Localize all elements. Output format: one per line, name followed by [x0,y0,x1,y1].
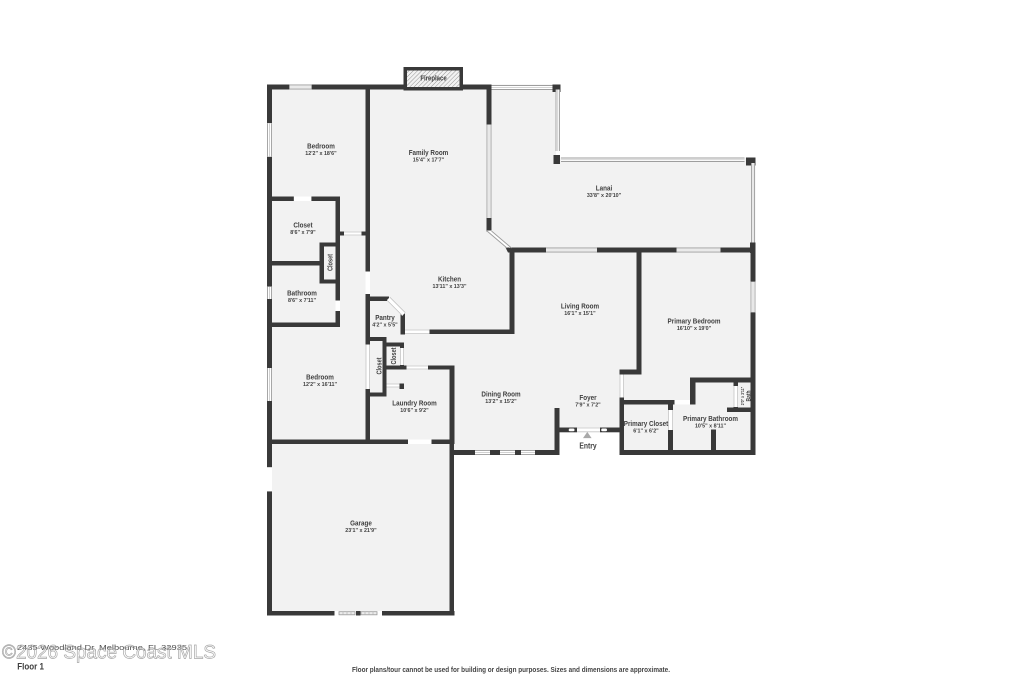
svg-text:Closet: Closet [327,253,335,271]
svg-text:Family Room: Family Room [409,150,449,158]
svg-text:33'8" x 20'10": 33'8" x 20'10" [587,193,622,199]
svg-text:7'9" x 7'2": 7'9" x 7'2" [575,402,601,408]
svg-text:Bedroom: Bedroom [307,143,335,151]
svg-text:Bath: Bath [746,390,753,402]
svg-text:12'2" x 16'11": 12'2" x 16'11" [303,382,338,388]
svg-text:13'11" x 13'3": 13'11" x 13'3" [432,284,467,290]
svg-text:2'0" x 3'11": 2'0" x 3'11" [740,387,746,406]
svg-text:10'5" x 8'11": 10'5" x 8'11" [695,423,727,429]
svg-text:Closet: Closet [293,222,313,230]
svg-text:13'2" x 15'2": 13'2" x 15'2" [485,399,517,405]
svg-text:Kitchen: Kitchen [438,276,461,284]
svg-text:Pantry: Pantry [375,315,395,323]
svg-text:Primary Bedroom: Primary Bedroom [668,318,721,326]
svg-text:16'10" x 19'0": 16'10" x 19'0" [677,326,712,332]
svg-text:Entry: Entry [579,441,597,451]
svg-text:Bathroom: Bathroom [287,290,317,298]
svg-text:10'6" x 9'2": 10'6" x 9'2" [400,408,429,414]
svg-text:8'6" x 7'11": 8'6" x 7'11" [288,298,317,304]
svg-text:Primary Bathroom: Primary Bathroom [683,416,738,424]
svg-text:Garage: Garage [350,520,372,528]
svg-text:Bedroom: Bedroom [306,374,334,382]
svg-text:15'4" x 17'7": 15'4" x 17'7" [413,157,445,163]
svg-text:4'2" x 5'5": 4'2" x 5'5" [372,322,398,328]
svg-text:12'2" x 18'6": 12'2" x 18'6" [305,151,337,157]
svg-text:Lanai: Lanai [596,185,613,193]
svg-text:Primary Closet: Primary Closet [624,421,669,429]
svg-text:16'1" x 15'1": 16'1" x 15'1" [564,311,596,317]
svg-text:Closet: Closet [390,347,398,365]
svg-text:23'1" x 21'9": 23'1" x 21'9" [345,528,377,534]
svg-text:Floor 1: Floor 1 [17,661,44,672]
svg-text:6'1" x 6'2": 6'1" x 6'2" [633,428,659,434]
svg-text:Living Room: Living Room [561,303,599,311]
svg-text:Laundry Room: Laundry Room [392,400,436,408]
svg-text:Dining Room: Dining Room [481,391,520,399]
svg-text:Foyer: Foyer [579,395,596,403]
svg-text:Fireplace: Fireplace [420,75,447,83]
svg-text:Floor plans/tour cannot be use: Floor plans/tour cannot be used for buil… [352,665,670,674]
svg-text:Closet: Closet [376,357,384,375]
svg-text:8'6" x 7'9": 8'6" x 7'9" [290,230,316,236]
